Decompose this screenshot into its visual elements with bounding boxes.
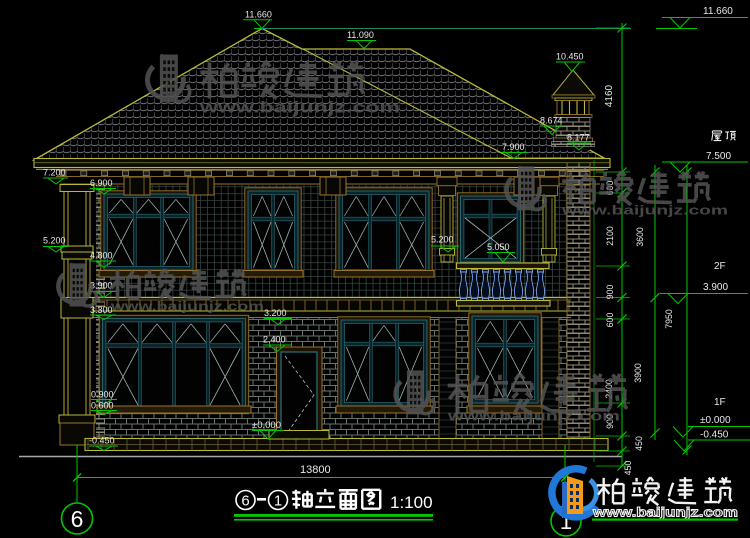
svg-text:5.200: 5.200: [431, 235, 454, 245]
svg-text:0.900: 0.900: [91, 390, 114, 400]
svg-text:11.090: 11.090: [347, 30, 374, 40]
svg-text:3.900: 3.900: [90, 281, 113, 291]
svg-text:11.660: 11.660: [245, 10, 272, 20]
svg-text:8.177: 8.177: [567, 133, 590, 143]
svg-text:450: 450: [623, 461, 633, 476]
svg-text:2.400: 2.400: [263, 335, 286, 345]
svg-text:±0.000: ±0.000: [252, 420, 281, 431]
svg-text:3.200: 3.200: [264, 308, 287, 318]
svg-text:www.baijunjz.com: www.baijunjz.com: [447, 407, 620, 423]
svg-text:4.800: 4.800: [90, 251, 113, 261]
svg-text:7.500: 7.500: [706, 151, 731, 162]
svg-text:900: 900: [605, 285, 615, 300]
svg-text:8.674: 8.674: [540, 116, 563, 126]
svg-text:www.baijunjz.com: www.baijunjz.com: [199, 100, 400, 117]
svg-text:3.300: 3.300: [90, 305, 113, 315]
svg-text:1:100: 1:100: [390, 493, 433, 512]
svg-text:5.050: 5.050: [487, 242, 510, 252]
svg-text:13800: 13800: [300, 464, 331, 476]
svg-text:6: 6: [71, 506, 84, 532]
svg-text:3.900: 3.900: [703, 282, 728, 293]
svg-text:±0.000: ±0.000: [700, 415, 731, 426]
svg-text:4160: 4160: [604, 84, 615, 107]
svg-text:-0.450: -0.450: [700, 430, 729, 441]
svg-text:3600: 3600: [635, 227, 645, 247]
svg-text:450: 450: [634, 436, 644, 451]
svg-text:www.baijunjz.com: www.baijunjz.com: [592, 506, 738, 520]
svg-text:www.baijunjz.com: www.baijunjz.com: [110, 299, 264, 313]
svg-text:3900: 3900: [633, 363, 643, 383]
svg-text:0.600: 0.600: [91, 401, 114, 411]
svg-text:7.200: 7.200: [43, 168, 66, 178]
svg-text:2F: 2F: [714, 261, 726, 272]
svg-text:7.900: 7.900: [502, 142, 525, 152]
svg-text:www.baijunjz.com: www.baijunjz.com: [561, 203, 728, 218]
svg-text:6.900: 6.900: [90, 178, 113, 188]
svg-text:1: 1: [274, 493, 282, 510]
svg-text:600: 600: [605, 313, 615, 328]
svg-text:6: 6: [241, 493, 249, 510]
svg-text:7950: 7950: [664, 309, 674, 329]
svg-text:10.450: 10.450: [556, 52, 584, 62]
svg-text:5.200: 5.200: [43, 236, 66, 246]
svg-text:11.660: 11.660: [703, 6, 733, 17]
svg-text:2100: 2100: [605, 226, 615, 246]
svg-text:1F: 1F: [714, 397, 726, 408]
svg-text:-0.450: -0.450: [89, 436, 115, 446]
